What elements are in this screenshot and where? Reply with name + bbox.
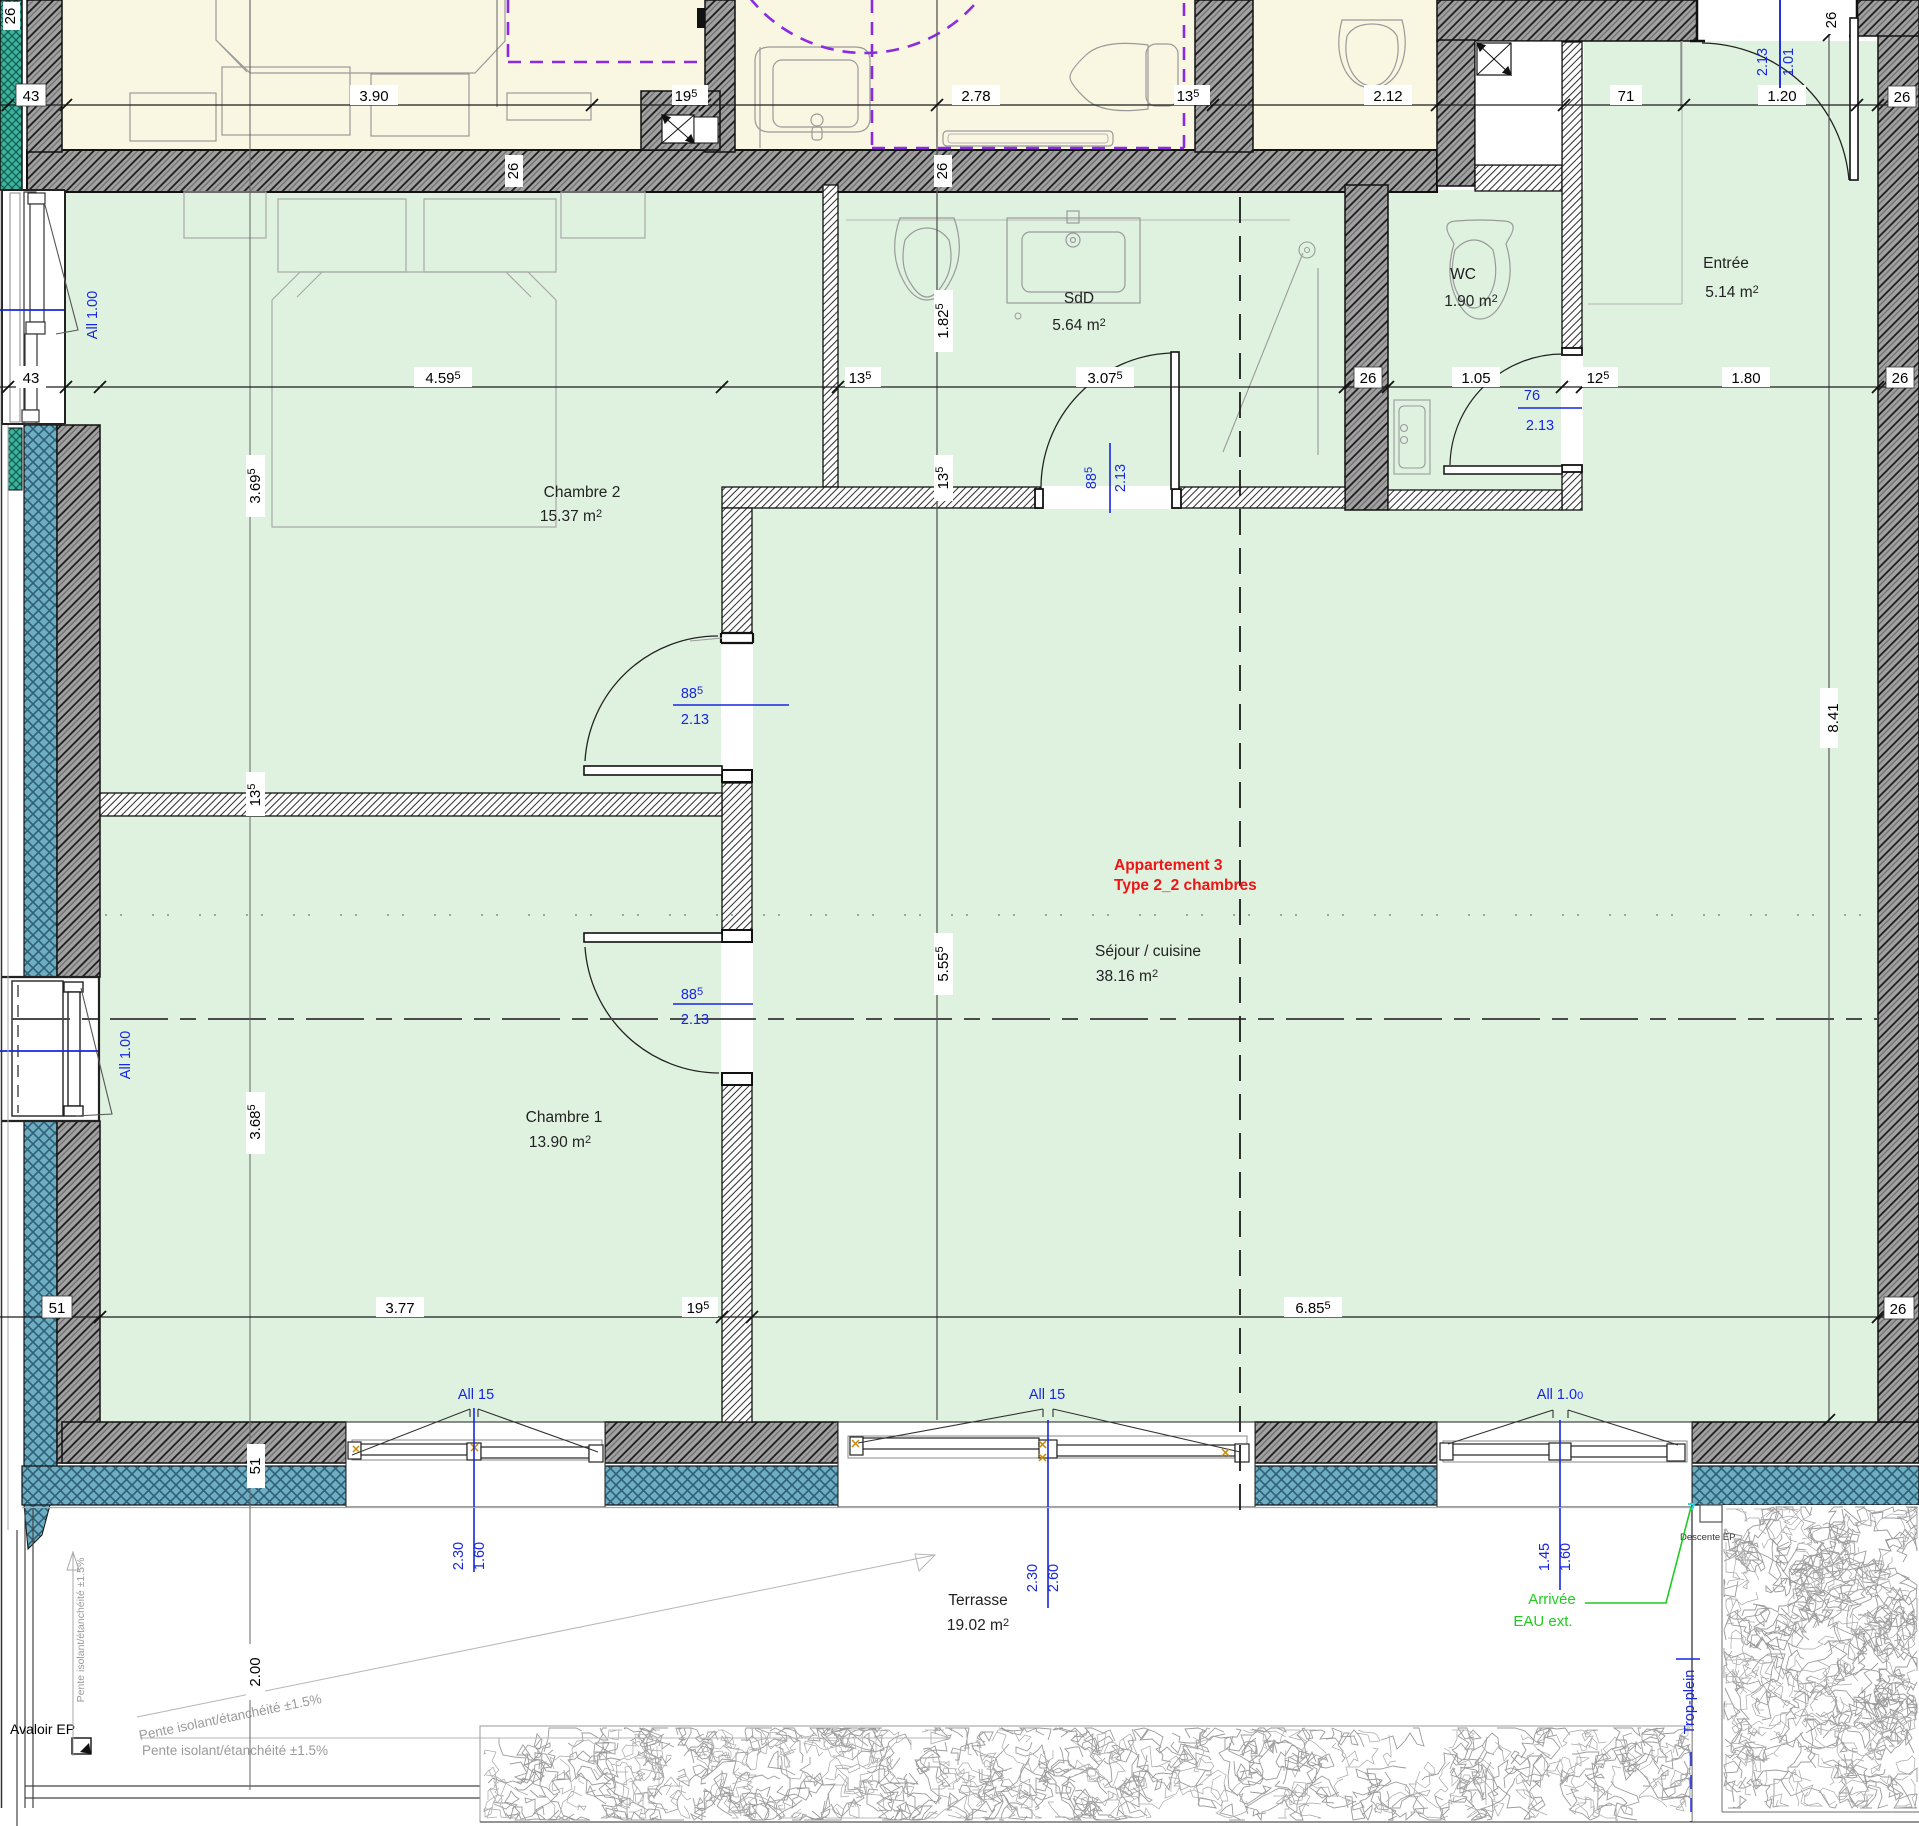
svg-text:19.02 m2: 19.02 m2	[947, 1617, 1009, 1634]
svg-text:All 1.00: All 1.00	[1537, 1387, 1583, 1403]
svg-text:2.13: 2.13	[1526, 418, 1554, 434]
svg-text:71: 71	[1618, 88, 1635, 105]
svg-text:1.80: 1.80	[1731, 370, 1760, 387]
svg-text:5.14 m2: 5.14 m2	[1705, 284, 1759, 301]
svg-text:26: 26	[934, 163, 951, 180]
svg-text:26: 26	[1890, 1301, 1907, 1318]
svg-text:Entrée: Entrée	[1703, 255, 1749, 272]
svg-text:2.12: 2.12	[1373, 88, 1402, 105]
svg-text:Arrivée: Arrivée	[1528, 1591, 1576, 1608]
svg-text:13.90 m2: 13.90 m2	[529, 1134, 591, 1151]
svg-text:2.13: 2.13	[681, 712, 709, 728]
svg-text:Descente EP: Descente EP	[1680, 1532, 1735, 1543]
svg-text:WC: WC	[1450, 266, 1476, 283]
svg-text:SdD: SdD	[1064, 290, 1094, 307]
svg-text:1.90 m2: 1.90 m2	[1444, 293, 1498, 310]
svg-text:2.60: 2.60	[1046, 1564, 1062, 1592]
svg-text:38.16 m2: 38.16 m2	[1096, 968, 1158, 985]
svg-text:51: 51	[247, 1458, 264, 1475]
svg-text:1.45: 1.45	[1537, 1543, 1553, 1571]
svg-text:Pente isolant/étanchéité ±1.5%: Pente isolant/étanchéité ±1.5%	[75, 1558, 87, 1703]
svg-text:2.13: 2.13	[1755, 48, 1771, 76]
svg-text:2.00: 2.00	[247, 1657, 264, 1686]
svg-text:26: 26	[505, 163, 522, 180]
svg-text:All 1.00: All 1.00	[85, 291, 101, 339]
svg-text:2.13: 2.13	[681, 1012, 709, 1028]
svg-text:All 15: All 15	[458, 1387, 494, 1403]
svg-text:Terrasse: Terrasse	[948, 1592, 1007, 1609]
svg-text:76: 76	[1524, 388, 1540, 404]
svg-text:EAU ext.: EAU ext.	[1513, 1613, 1572, 1630]
svg-text:Appartement 3: Appartement 3	[1114, 857, 1223, 874]
svg-text:15.37 m2: 15.37 m2	[540, 508, 602, 525]
svg-text:Type 2_2 chambres: Type 2_2 chambres	[1114, 877, 1257, 894]
svg-text:2.30: 2.30	[451, 1542, 467, 1570]
svg-text:1.20: 1.20	[1767, 88, 1796, 105]
svg-text:51: 51	[49, 1300, 66, 1317]
svg-text:26: 26	[1892, 370, 1909, 387]
svg-text:2.30: 2.30	[1025, 1564, 1041, 1592]
svg-text:All 1.00: All 1.00	[118, 1031, 134, 1079]
svg-text:Pente isolant/étanchéité ±1.5%: Pente isolant/étanchéité ±1.5%	[142, 1743, 328, 1758]
svg-text:1.60: 1.60	[472, 1542, 488, 1570]
svg-text:3.90: 3.90	[359, 88, 388, 105]
svg-text:Avaloir EP: Avaloir EP	[10, 1721, 75, 1737]
svg-text:2.78: 2.78	[961, 88, 990, 105]
svg-text:8.41: 8.41	[1825, 703, 1842, 732]
svg-text:Séjour / cuisine: Séjour / cuisine	[1095, 943, 1201, 960]
svg-text:All 15: All 15	[1029, 1387, 1065, 1403]
svg-text:1.01: 1.01	[1781, 48, 1797, 76]
svg-text:Chambre 1: Chambre 1	[526, 1109, 603, 1126]
svg-text:26: 26	[2, 8, 19, 25]
svg-text:26: 26	[1360, 370, 1377, 387]
svg-text:1.60: 1.60	[1558, 1543, 1574, 1571]
svg-text:Chambre 2: Chambre 2	[544, 484, 621, 501]
svg-text:2.13: 2.13	[1113, 464, 1129, 492]
svg-text:43: 43	[23, 88, 40, 105]
svg-text:3.77: 3.77	[385, 1300, 414, 1317]
svg-text:1.05: 1.05	[1461, 370, 1490, 387]
svg-text:26: 26	[1823, 12, 1840, 29]
svg-text:26: 26	[1894, 89, 1911, 106]
svg-text:5.64 m2: 5.64 m2	[1052, 317, 1106, 334]
svg-text:Trop-plein: Trop-plein	[1682, 1670, 1698, 1735]
svg-text:43: 43	[23, 370, 40, 387]
